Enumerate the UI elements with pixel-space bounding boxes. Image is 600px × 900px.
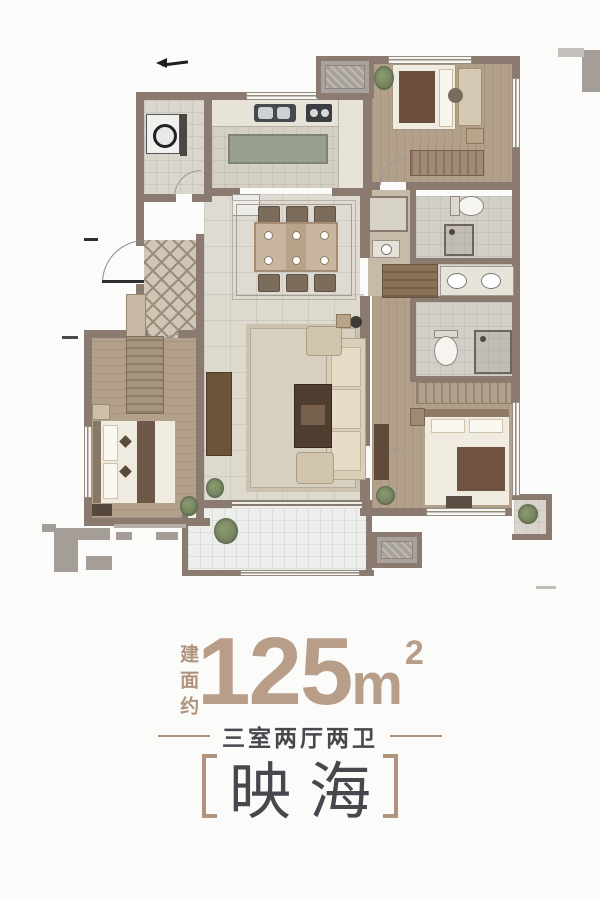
- desk-chair: [448, 88, 463, 103]
- dining-chair: [258, 274, 280, 292]
- wall: [196, 348, 204, 526]
- dining-chair: [314, 274, 336, 292]
- wall: [178, 330, 204, 338]
- wall: [136, 194, 176, 202]
- dimension-mark: [62, 336, 78, 339]
- balcony-window: [240, 570, 360, 576]
- area-figure: 125m2: [197, 630, 422, 714]
- floor-plan-page: 建面约 125m2 三室两厅两卫 映海: [0, 0, 600, 900]
- potted-plant: [214, 518, 238, 544]
- master-wardrobe: [416, 382, 512, 404]
- unit-name-row: 映海: [0, 744, 600, 828]
- neighbor-fragment: [86, 556, 112, 570]
- armchair: [306, 326, 342, 356]
- wall: [136, 92, 144, 204]
- wall: [410, 296, 416, 382]
- bed-bench: [446, 496, 472, 508]
- divider-line: [390, 735, 442, 737]
- north-arrow-icon: [156, 54, 190, 72]
- neighbor-fragment: [558, 48, 584, 57]
- stove: [306, 104, 332, 122]
- toilet: [458, 196, 484, 216]
- divider-line: [158, 735, 210, 737]
- area-value: 125: [197, 630, 351, 714]
- neighbor-fragment: [156, 532, 178, 540]
- left-bracket: [202, 754, 217, 818]
- potted-plant: [206, 478, 224, 498]
- entry-door-leaf: [102, 280, 144, 283]
- dresser: [410, 150, 484, 176]
- ac-platform: [316, 56, 374, 98]
- double-vanity: [440, 266, 514, 296]
- wardrobe: [126, 336, 164, 414]
- balcony-sliding-door: [232, 500, 362, 508]
- shower: [444, 224, 474, 256]
- wall: [332, 188, 362, 196]
- hall-vanity: [372, 240, 400, 258]
- toilet-tank: [450, 196, 460, 216]
- side-table: [336, 314, 351, 328]
- bed: [392, 64, 456, 130]
- armchair: [296, 452, 334, 484]
- neighbor-fragment: [116, 532, 132, 540]
- master-dresser: [374, 424, 389, 480]
- storage-cabinet: [382, 264, 438, 298]
- side-table: [466, 128, 484, 144]
- floor-lamp: [350, 316, 362, 328]
- door-dimension-mark: [84, 238, 98, 241]
- area-row: 建面约 125m2: [0, 630, 600, 730]
- area-superscript: 2: [405, 634, 424, 673]
- balcony-floor: [188, 508, 366, 570]
- potted-plant: [518, 504, 538, 524]
- neighbor-fragment: [54, 528, 110, 540]
- master-shower: [474, 330, 512, 374]
- master-bedroom-window: [512, 402, 520, 496]
- master-bottom-window: [426, 508, 506, 516]
- kitchen-counter-side: [338, 100, 363, 188]
- area-unit: m: [351, 659, 403, 710]
- bedroom-window: [84, 426, 92, 498]
- master-toilet: [434, 336, 458, 366]
- tv-cabinet: [206, 372, 232, 456]
- unit-name: 映海: [229, 741, 389, 831]
- utility-shelf: [180, 114, 187, 156]
- dining-table: [254, 222, 338, 272]
- wall: [204, 500, 232, 508]
- kitchen-island: [228, 134, 328, 164]
- bedroom-2-side-window: [512, 78, 520, 148]
- area-prefix-label: 建面约: [178, 644, 197, 722]
- right-bracket: [383, 754, 398, 818]
- nightstand: [92, 504, 112, 516]
- ac-platform-2: [372, 532, 422, 568]
- nightstand: [92, 404, 110, 420]
- neighbor-fragment: [582, 50, 600, 92]
- hall-cabinet: [368, 196, 408, 232]
- dining-chair: [286, 274, 308, 292]
- bed: [92, 420, 176, 504]
- shoe-cabinet: [126, 294, 146, 340]
- wall: [204, 98, 212, 196]
- wall: [362, 500, 372, 508]
- kitchen-sink: [254, 104, 296, 122]
- kitchen-window: [246, 92, 318, 100]
- potted-plant: [374, 66, 394, 90]
- neighbor-fragment: [54, 540, 78, 572]
- neighbor-fragment: [114, 524, 186, 528]
- neighbor-fragment: [536, 586, 556, 589]
- potted-plant: [180, 496, 198, 516]
- master-bed: [424, 408, 510, 506]
- wall: [372, 182, 380, 190]
- wall: [410, 190, 416, 264]
- coffee-table: [294, 384, 332, 448]
- nightstand: [410, 408, 425, 426]
- entry-door-arc: [102, 240, 145, 283]
- potted-plant: [376, 486, 395, 505]
- wall: [512, 534, 552, 540]
- bedroom-2-window: [388, 56, 472, 64]
- wall: [406, 182, 512, 190]
- washing-machine: [146, 114, 180, 154]
